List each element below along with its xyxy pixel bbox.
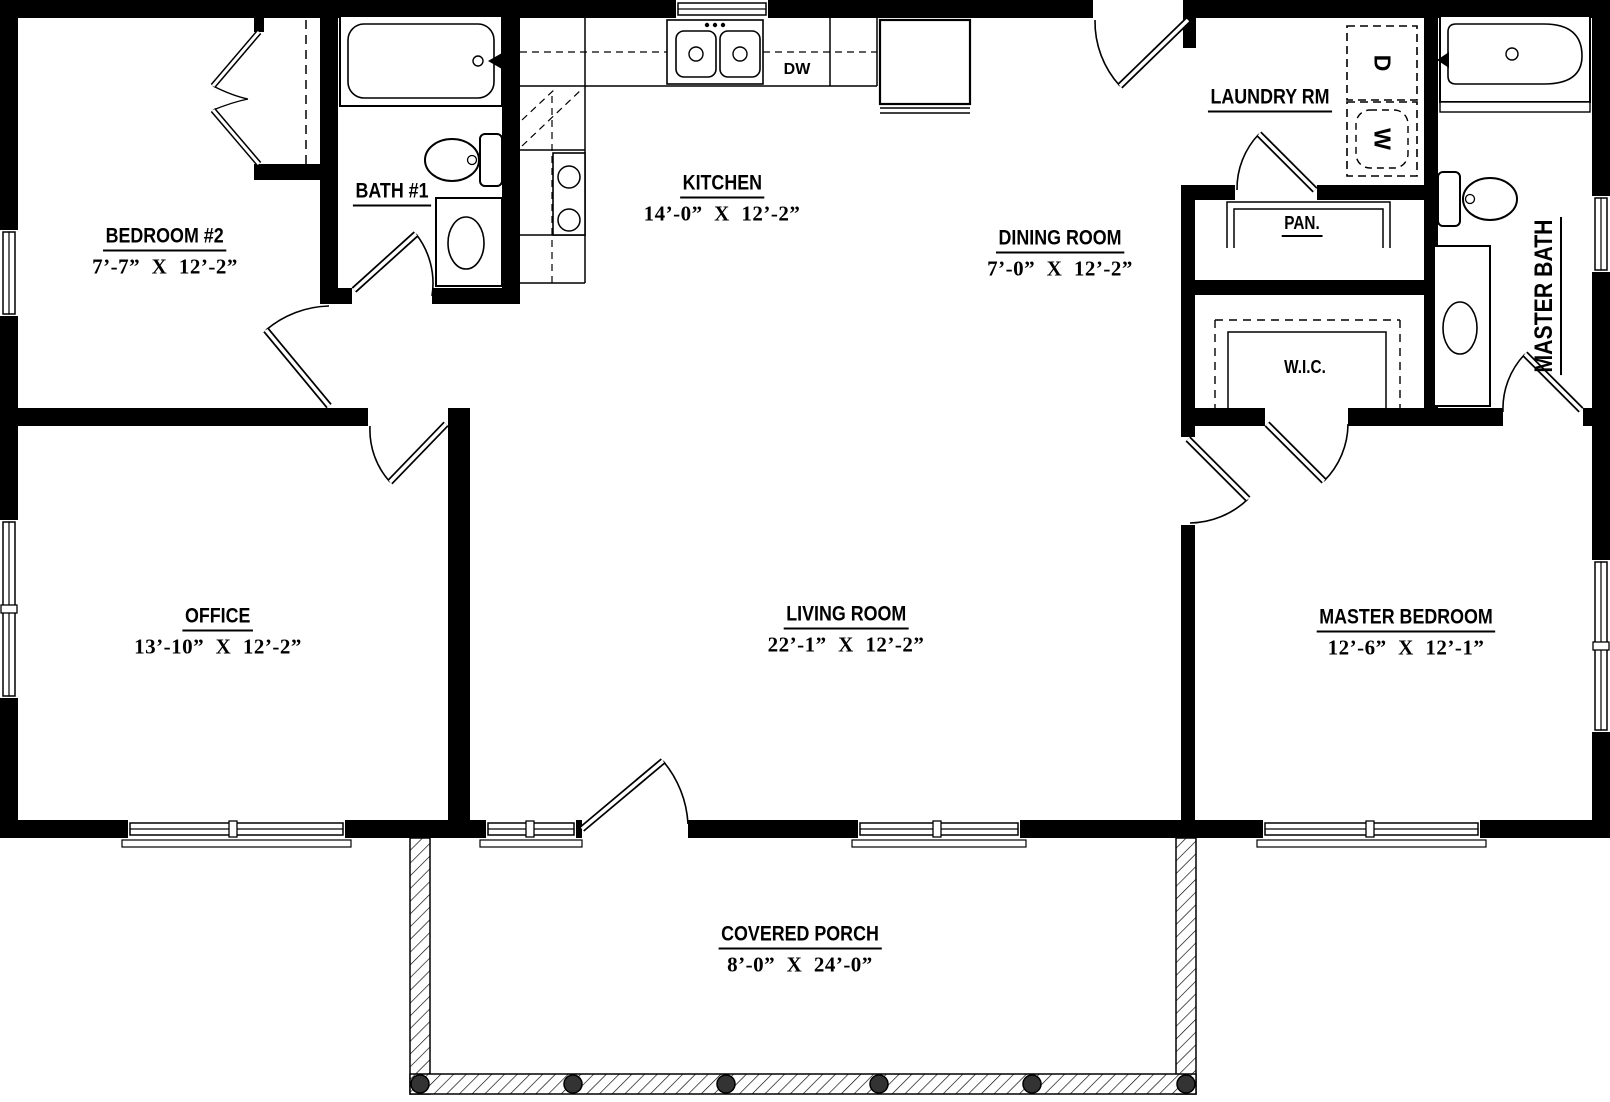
bedroom2-window [0, 230, 18, 316]
refrigerator [880, 20, 970, 113]
dryer-label: D [1369, 55, 1396, 72]
office-door [370, 424, 446, 482]
wic-door [1267, 424, 1348, 481]
room-label-living-room: LIVING ROOM 22’-1” X 12’-2” [768, 603, 925, 658]
room-name: MASTER BEDROOM [1317, 606, 1496, 633]
bathtub [340, 16, 502, 106]
room-label-pantry: PAN. [1278, 213, 1326, 237]
room-dims: 12’-6” X 12’-1” [1328, 636, 1485, 661]
room-dims: 7’-0” X 12’-2” [987, 257, 1133, 282]
floor-plan: BEDROOM #2 7’-7” X 12’-2” BATH #1 KITCHE… [0, 0, 1610, 1102]
room-name: OFFICE [183, 605, 254, 632]
back-door [1095, 20, 1188, 86]
bath1-vanity-sink [436, 198, 502, 286]
washer-label: W [1369, 128, 1396, 150]
master-tub-shower [1437, 16, 1590, 112]
room-name: MASTER BATH [1530, 217, 1562, 375]
porch-wall-right [1176, 838, 1196, 1094]
dishwasher-label: DW [784, 61, 811, 79]
room-label-laundry: LAUNDRY RM [1197, 86, 1343, 113]
office-side-window [0, 520, 18, 698]
master-bedroom-front-window [1257, 820, 1486, 847]
room-dims: 22’-1” X 12’-2” [768, 633, 925, 658]
room-name: COVERED PORCH [719, 923, 882, 950]
kitchen-sink [667, 20, 763, 84]
laundry-fixtures [1347, 26, 1417, 176]
room-name: KITCHEN [680, 172, 764, 199]
room-name: LAUNDRY RM [1208, 86, 1332, 113]
toilet [425, 134, 502, 186]
laundry-door [1237, 134, 1315, 190]
bath1-door [354, 234, 433, 296]
bedroom2-door [266, 306, 329, 406]
bath1-fixtures [340, 16, 502, 286]
room-dims: 13’-10” X 12’-2” [134, 635, 302, 660]
living-room-front-window [852, 820, 1026, 847]
porch-wall-front [410, 1074, 1196, 1094]
range-stove [553, 153, 585, 235]
master-bedroom-door [1188, 439, 1248, 523]
room-label-master-bedroom: MASTER BEDROOM 12’-6” X 12’-1” [1301, 606, 1511, 661]
room-label-bedroom2: BEDROOM #2 7’-7” X 12’-2” [92, 225, 238, 280]
room-label-master-bath: MASTER BATH [1530, 203, 1562, 389]
master-bath-window [1592, 196, 1610, 272]
bedroom2-closet-doors [213, 32, 259, 164]
living-room-sidelite-window [480, 820, 582, 847]
porch-wall-left [410, 838, 430, 1094]
room-name: W.I.C. [1282, 357, 1329, 379]
walls [0, 0, 1610, 838]
room-name: PAN. [1282, 213, 1323, 237]
room-label-kitchen: KITCHEN 14’-0” X 12’-2” [644, 172, 801, 227]
room-label-covered-porch: COVERED PORCH 8’-0” X 24’-0” [704, 923, 896, 978]
room-dims: 8’-0” X 24’-0” [727, 953, 873, 978]
master-bath-fixtures [1434, 16, 1590, 406]
master-toilet [1438, 172, 1517, 226]
master-vanity-sink [1434, 246, 1490, 406]
front-door [582, 761, 688, 829]
room-name: BEDROOM #2 [103, 225, 226, 252]
room-label-wic: W.I.C. [1278, 357, 1333, 379]
room-name: BATH #1 [353, 180, 431, 207]
room-dims: 14’-0” X 12’-2” [644, 202, 801, 227]
office-front-window [122, 820, 351, 847]
room-label-office: OFFICE 13’-10” X 12’-2” [134, 605, 302, 660]
room-label-dining-room: DINING ROOM 7’-0” X 12’-2” [985, 227, 1136, 282]
room-label-bath1: BATH #1 [346, 180, 438, 207]
kitchen-fixtures [520, 18, 970, 283]
room-name: LIVING ROOM [783, 603, 908, 630]
kitchen-window [676, 0, 768, 18]
master-bedroom-side-window [1592, 560, 1610, 732]
room-name: DINING ROOM [996, 227, 1124, 254]
room-dims: 7’-7” X 12’-2” [92, 255, 238, 280]
